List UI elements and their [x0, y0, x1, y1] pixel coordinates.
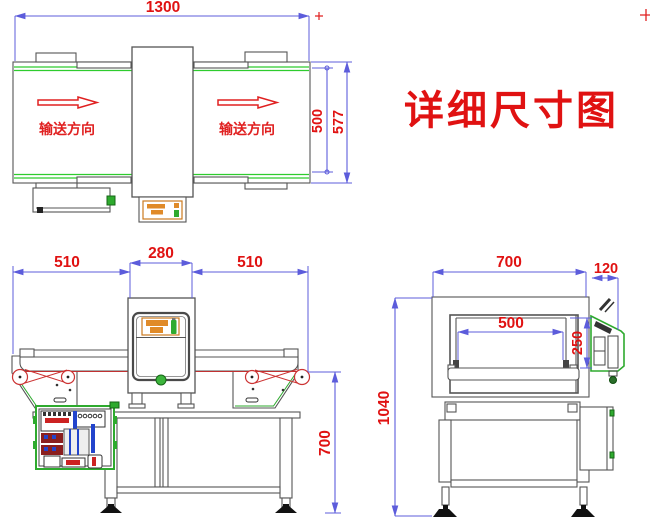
dim-detector-width: 280	[148, 245, 174, 262]
front-view-drawing: 510 280 510 700	[0, 240, 360, 530]
guard-plate	[194, 62, 248, 68]
foot	[571, 509, 595, 517]
contactor	[64, 429, 89, 455]
flow-label-right: 输送方向	[219, 121, 275, 137]
test-bottle	[171, 320, 177, 334]
detector-head-top	[132, 47, 193, 197]
belt-end-cap	[284, 349, 298, 357]
frame-slab	[445, 402, 580, 420]
guard-plate	[245, 183, 287, 189]
dim-total-height: 1040	[376, 391, 393, 425]
dim-panel-depth: 120	[594, 261, 618, 277]
page-title: 详细尺寸图	[404, 78, 644, 134]
knob	[156, 375, 166, 385]
belt-end-cap	[20, 349, 34, 357]
corner-crop-mark	[640, 9, 650, 21]
panel-connector	[610, 377, 617, 384]
motor-connector	[107, 196, 115, 205]
dim-belt-height: 700	[317, 430, 334, 456]
dim-tunnel-height: 250	[570, 331, 586, 355]
frame-leg	[280, 418, 292, 498]
motor-box-side	[580, 407, 613, 470]
panel-keys	[151, 210, 163, 215]
frame-post	[155, 418, 160, 487]
panel-keys	[150, 327, 163, 333]
dimension-drawing-page: 输送方向 输送方向 1300 577 500	[0, 0, 650, 530]
panel-display	[146, 320, 168, 326]
foot	[275, 506, 297, 513]
terminal-block	[76, 411, 105, 427]
frame-crossbar	[451, 480, 577, 487]
panel-lamp	[174, 203, 179, 208]
head-bracket	[181, 393, 191, 404]
leveling-tube	[442, 487, 449, 505]
dim-left-conveyor: 510	[54, 254, 80, 271]
panel-switch	[174, 210, 179, 217]
wire-duct	[91, 424, 95, 453]
dim-depth: 700	[496, 254, 522, 271]
socket	[44, 456, 60, 467]
dim-overall-length: 1300	[146, 0, 180, 16]
motor-foot	[37, 207, 43, 213]
side-view-drawing: 700 120 500 250 1040	[370, 240, 650, 530]
dim-belt-width: 500	[310, 109, 326, 133]
frame-bottom-rail	[117, 487, 280, 493]
cad-point-marker	[315, 12, 323, 20]
foot	[433, 509, 457, 517]
guard-plate	[77, 177, 131, 183]
leveling-tube	[580, 487, 587, 505]
guard-plate	[245, 52, 287, 62]
frame-leg	[439, 420, 451, 482]
cabinet-gland	[110, 402, 119, 408]
dim-tunnel-width: 500	[498, 315, 524, 332]
head-bracket	[132, 393, 142, 404]
frame-post	[163, 418, 168, 487]
flow-label-left: 输送方向	[39, 121, 95, 137]
guard-plate	[77, 62, 131, 68]
dim-frame-width: 577	[331, 110, 347, 134]
guard-plate	[36, 53, 76, 62]
dim-right-conveyor: 510	[237, 254, 263, 271]
guard-plate	[194, 177, 248, 183]
belt-deck-side	[448, 368, 579, 380]
top-view-drawing: 输送方向 输送方向 1300 577 500	[0, 0, 360, 240]
foot	[100, 506, 122, 513]
panel-display	[147, 204, 165, 209]
